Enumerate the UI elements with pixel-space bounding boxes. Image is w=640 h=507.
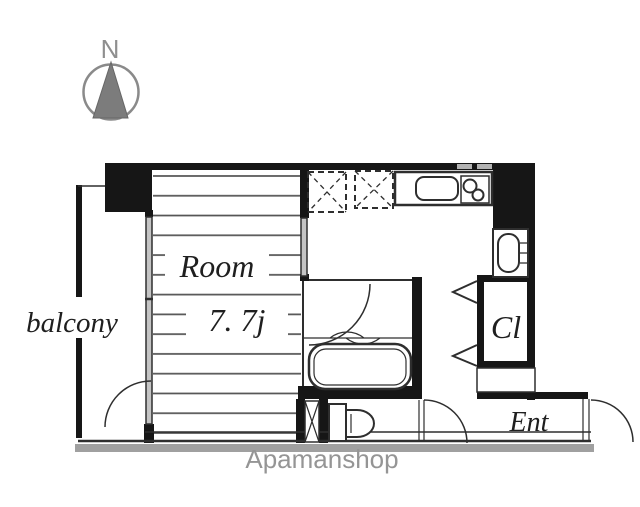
- wall-segment: [105, 163, 152, 212]
- wall-segment: [319, 399, 328, 443]
- north-label: N: [101, 34, 120, 64]
- toilet-door-arc: [424, 400, 467, 443]
- north-arrow-icon: [93, 62, 128, 118]
- shoe-storage-box: [477, 368, 535, 392]
- bathtub: [309, 344, 411, 389]
- watermark: Apamanshop: [245, 444, 398, 474]
- wall-segment: [477, 392, 588, 399]
- room-label: Room: [179, 248, 255, 284]
- closet-label: Cl: [491, 309, 521, 345]
- kitchen-sink: [416, 177, 458, 200]
- closet-fold-door-mark: [453, 345, 477, 366]
- room-sliding-door: [301, 218, 307, 276]
- floor-plan-drawing: Room 7. 7j balcony Cl Ent N Apamanshop: [0, 0, 640, 507]
- wall-segment: [493, 163, 535, 229]
- toilet-door-leaf: [419, 400, 424, 442]
- entrance: [583, 399, 633, 442]
- wall-segment: [296, 399, 305, 443]
- balcony-door-arc: [105, 381, 151, 427]
- room-size-label: 7. 7j: [209, 302, 266, 338]
- kitchen: [308, 171, 492, 212]
- appliance-space-1-cross: [308, 172, 346, 212]
- balcony-window: [146, 217, 152, 424]
- floor-plan-page: Room 7. 7j balcony Cl Ent N Apamanshop: [0, 0, 640, 507]
- range-hood-mark: [477, 164, 492, 169]
- entrance-label: Ent: [509, 407, 550, 438]
- entrance-door-arc: [591, 400, 633, 442]
- washbasin-bowl: [498, 234, 519, 272]
- toilet-bowl: [346, 410, 374, 437]
- wall-segment: [477, 275, 484, 368]
- appliance-space-2-cross: [355, 171, 393, 208]
- balcony-wall: [76, 338, 82, 438]
- wall-segment: [477, 361, 535, 368]
- balcony-label: balcony: [26, 307, 118, 339]
- wall-segment: [412, 277, 422, 395]
- washbasin: [493, 229, 528, 277]
- toilet-room: [305, 400, 467, 443]
- wall-segment: [145, 210, 153, 217]
- balcony-wall: [76, 185, 82, 297]
- entrance-door-leaf: [583, 399, 589, 441]
- range-hood-mark: [457, 164, 472, 169]
- closet-fold-door-mark: [453, 281, 477, 303]
- compass: N: [84, 34, 139, 120]
- toilet-tank: [329, 404, 346, 441]
